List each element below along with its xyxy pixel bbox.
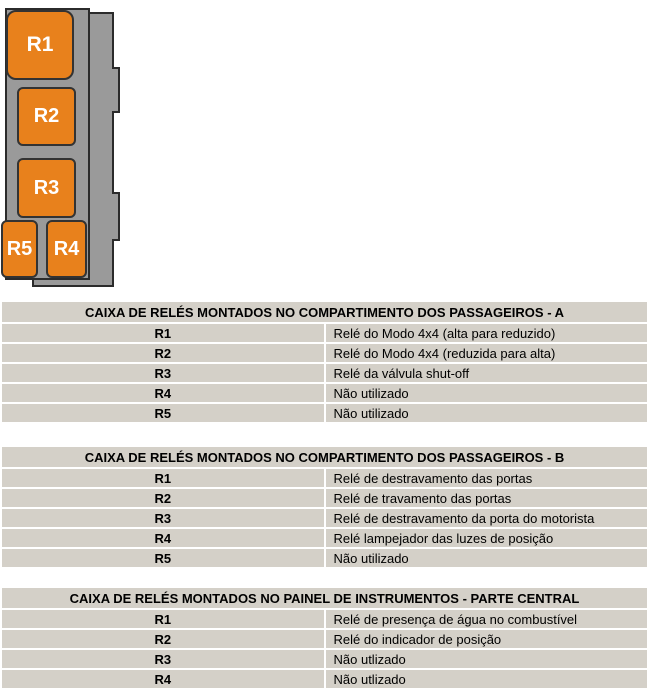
table-row: R3 Não utlizado (2, 650, 647, 668)
relay-desc-cell: Relé do Modo 4x4 (alta para reduzido) (326, 324, 648, 342)
table-row: R3 Relé da válvula shut-off (2, 364, 647, 382)
relay-desc-cell: Não utilizado (326, 384, 648, 402)
table-row: R1 Relé de presença de água no combustív… (2, 610, 647, 628)
relay-desc-cell: Relé do indicador de posição (326, 630, 648, 648)
relay-id-cell: R3 (2, 650, 324, 668)
relay-desc-cell: Não utlizado (326, 670, 648, 688)
table-row: R5 Não utilizado (2, 404, 647, 422)
relay-r2: R2 (17, 87, 76, 146)
relay-id-cell: R4 (2, 670, 324, 688)
relay-id-cell: R2 (2, 630, 324, 648)
table-row: R4 Relé lampejador das luzes de posição (2, 529, 647, 547)
table-row: R1 Relé de destravamento das portas (2, 469, 647, 487)
table-row: R5 Não utilizado (2, 549, 647, 567)
relay-id-cell: R1 (2, 610, 324, 628)
relay-id-cell: R4 (2, 529, 324, 547)
relay-r1: R1 (6, 10, 74, 80)
relay-id-cell: R1 (2, 469, 324, 487)
relay-id-cell: R5 (2, 404, 324, 422)
relay-desc-cell: Relé lampejador das luzes de posição (326, 529, 648, 547)
relay-table-painel-central: CAIXA DE RELÉS MONTADOS NO PAINEL DE INS… (0, 586, 649, 690)
table-row: R1 Relé do Modo 4x4 (alta para reduzido) (2, 324, 647, 342)
table-row: R3 Relé de destravamento da porta do mot… (2, 509, 647, 527)
table-title: CAIXA DE RELÉS MONTADOS NO PAINEL DE INS… (2, 588, 647, 608)
relay-id-cell: R1 (2, 324, 324, 342)
relay-table-passageiros-a: CAIXA DE RELÉS MONTADOS NO COMPARTIMENTO… (0, 300, 649, 424)
relay-box-diagram: R1 R2 R3 R5 R4 (0, 0, 130, 292)
table-row: R2 Relé de travamento das portas (2, 489, 647, 507)
table-row: R2 Relé do indicador de posição (2, 630, 647, 648)
relay-id-cell: R2 (2, 344, 324, 362)
relay-table-passageiros-b: CAIXA DE RELÉS MONTADOS NO COMPARTIMENTO… (0, 445, 649, 569)
relay-desc-cell: Não utilizado (326, 404, 648, 422)
table-title: CAIXA DE RELÉS MONTADOS NO COMPARTIMENTO… (2, 302, 647, 322)
relay-desc-cell: Relé de travamento das portas (326, 489, 648, 507)
relay-desc-cell: Relé da válvula shut-off (326, 364, 648, 382)
relay-desc-cell: Não utilizado (326, 549, 648, 567)
relay-r3: R3 (17, 158, 76, 218)
relay-desc-cell: Não utlizado (326, 650, 648, 668)
relay-desc-cell: Relé de destravamento das portas (326, 469, 648, 487)
relay-r4: R4 (46, 220, 87, 278)
relay-id-cell: R4 (2, 384, 324, 402)
relay-id-cell: R3 (2, 364, 324, 382)
relay-id-cell: R5 (2, 549, 324, 567)
relay-id-cell: R2 (2, 489, 324, 507)
relay-id-cell: R3 (2, 509, 324, 527)
relay-desc-cell: Relé de destravamento da porta do motori… (326, 509, 648, 527)
table-title: CAIXA DE RELÉS MONTADOS NO COMPARTIMENTO… (2, 447, 647, 467)
relay-desc-cell: Relé do Modo 4x4 (reduzida para alta) (326, 344, 648, 362)
table-row: R2 Relé do Modo 4x4 (reduzida para alta) (2, 344, 647, 362)
relay-desc-cell: Relé de presença de água no combustível (326, 610, 648, 628)
table-row: R4 Não utlizado (2, 670, 647, 688)
relay-r5: R5 (1, 220, 38, 278)
table-row: R4 Não utilizado (2, 384, 647, 402)
